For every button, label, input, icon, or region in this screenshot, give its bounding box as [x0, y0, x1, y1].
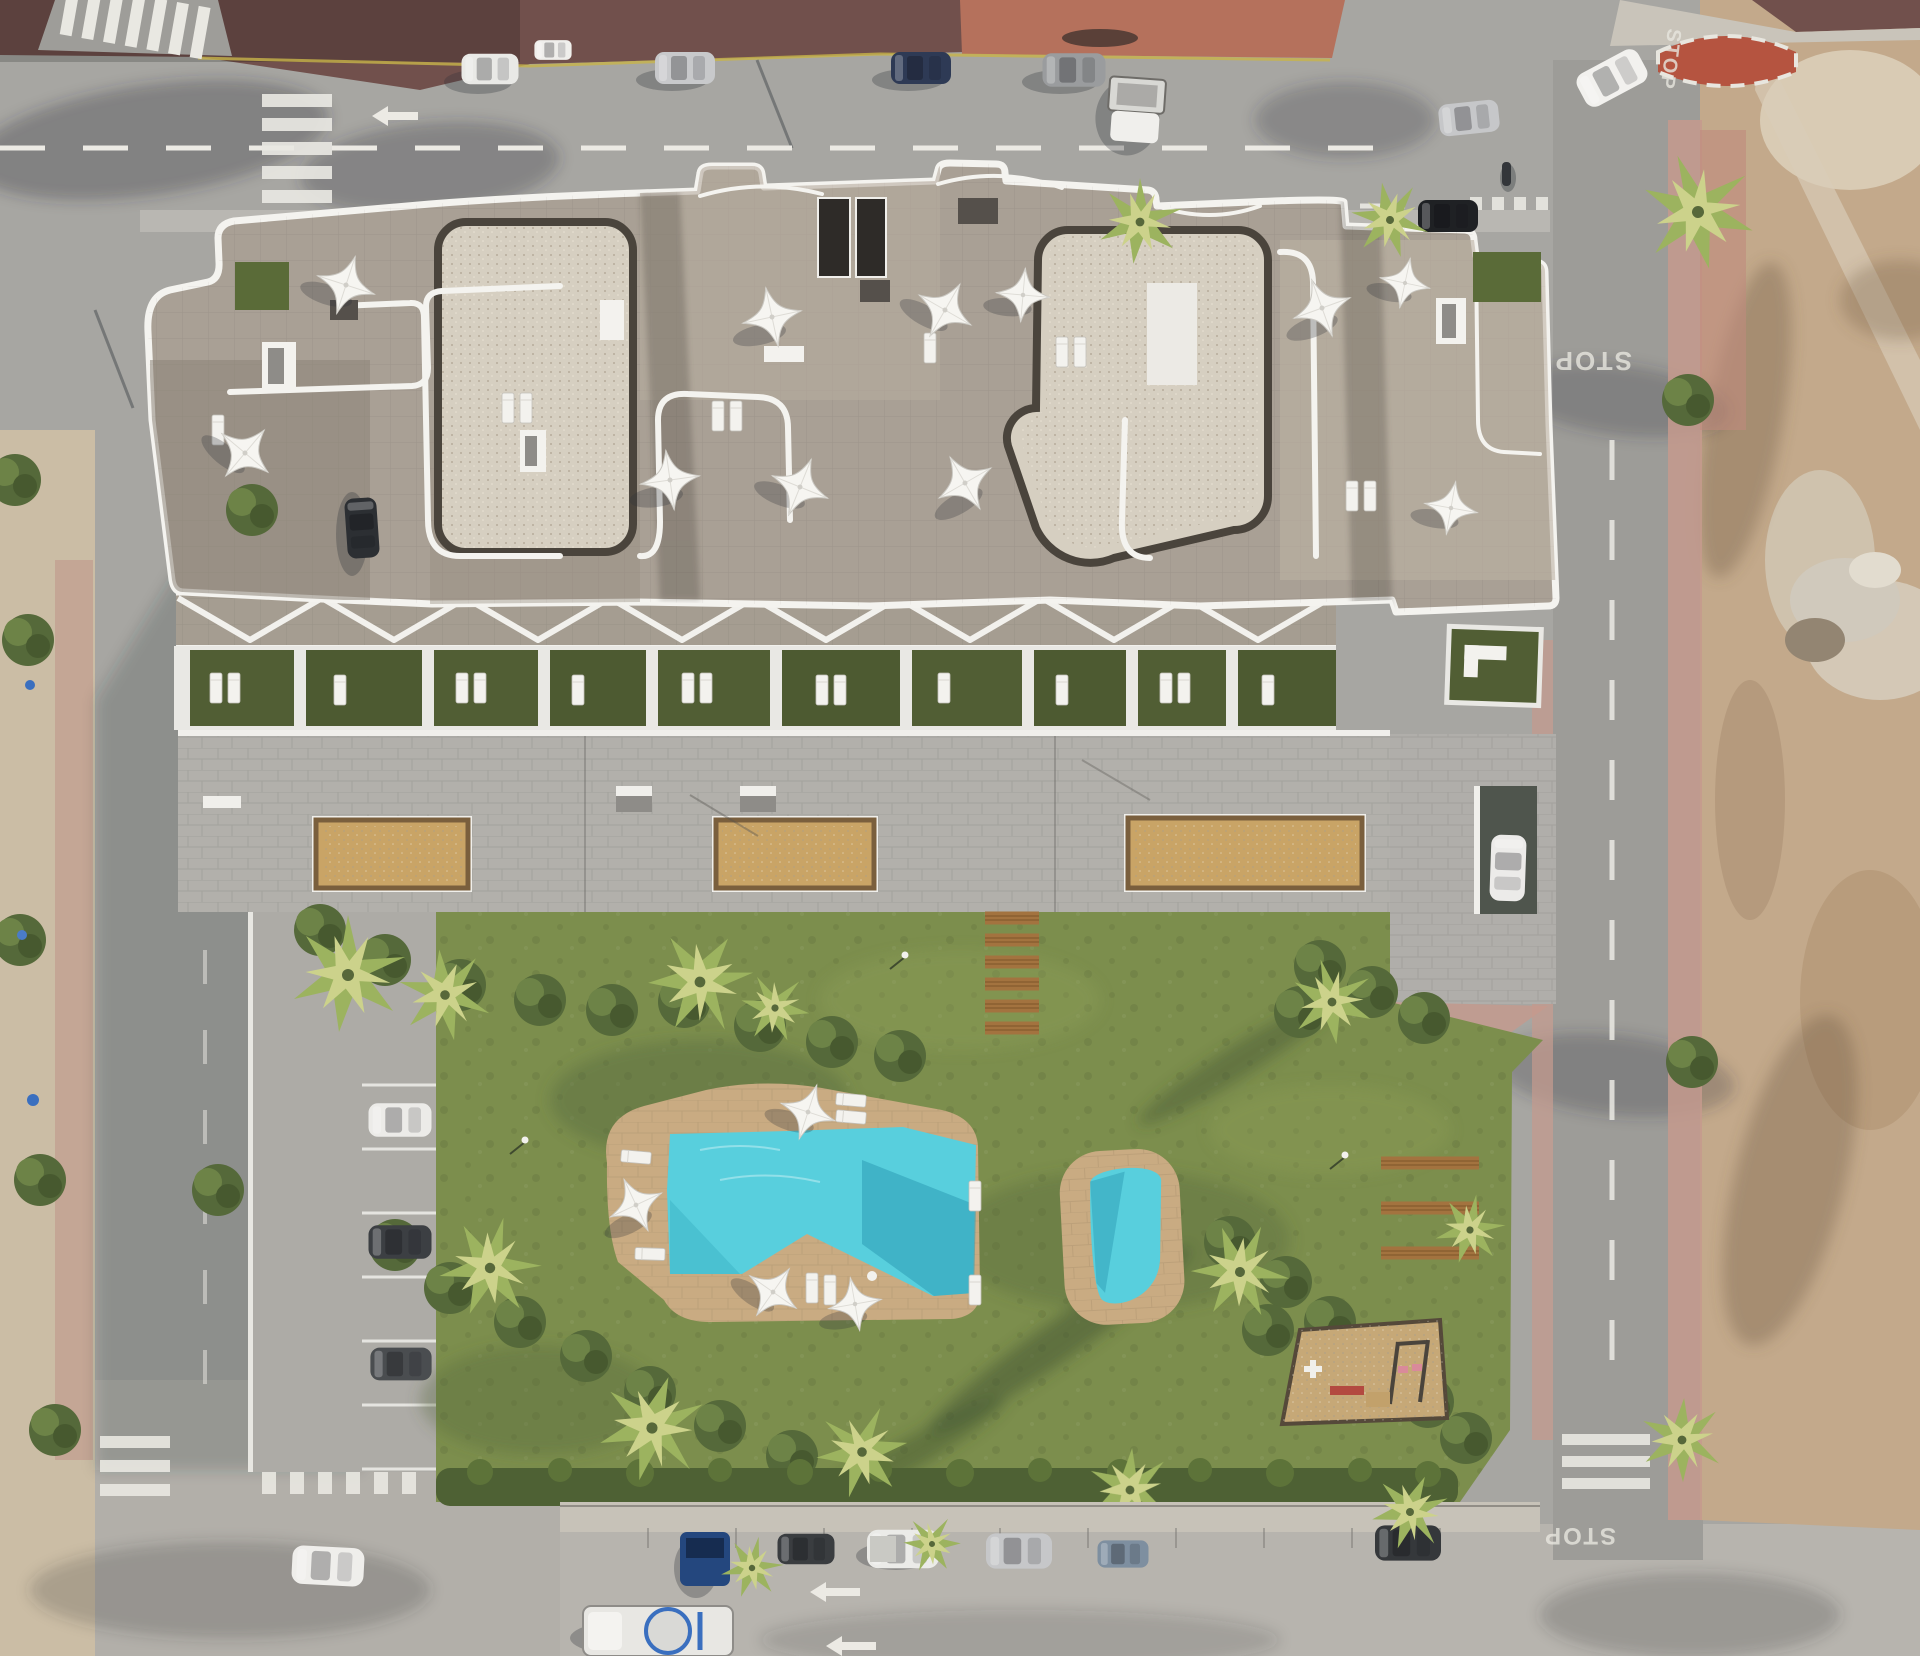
- bush: [2, 614, 54, 666]
- petanque-court: [312, 816, 472, 892]
- roof-planter: [1473, 252, 1541, 302]
- garden-units: [190, 650, 1336, 726]
- bush: [14, 1154, 66, 1206]
- parked-car-gray: [1043, 53, 1106, 87]
- parked-car-silver: [986, 1533, 1052, 1568]
- play-bench: [1330, 1386, 1364, 1395]
- parked-car-silver: [655, 52, 715, 84]
- parked-car-white: [534, 40, 571, 60]
- moving-car-silver: [1437, 99, 1500, 137]
- parked-car-blue: [891, 52, 951, 84]
- parked-suv-dark: [778, 1534, 835, 1564]
- crosswalk-right-bottom: [1562, 1434, 1650, 1489]
- blue-bin: [25, 680, 35, 690]
- petanque-court: [1124, 814, 1366, 892]
- parked-car-steel-blue: [1098, 1540, 1149, 1567]
- stop-marking-bottom: STOP: [1543, 1522, 1616, 1549]
- swing-seat: [1412, 1364, 1422, 1371]
- roof-planter: [235, 262, 289, 310]
- roof-table-set: [958, 198, 998, 224]
- petanque-court: [712, 816, 878, 892]
- blue-bin: [17, 930, 27, 940]
- left-sand-sidewalk: [0, 430, 95, 1656]
- communal-garden: [294, 904, 1543, 1549]
- stop-marking-right: STOP: [1554, 346, 1632, 376]
- parked-van-white: [462, 54, 519, 84]
- petanque-courts: [312, 814, 1366, 892]
- top-left-crosswalk: [38, 0, 232, 59]
- aerial-render: STOP STOP STOP: [0, 0, 1920, 1656]
- sand-table: [1366, 1392, 1390, 1407]
- pink-tile-strip: [55, 560, 93, 1460]
- garage-ramp-car: [1489, 834, 1526, 901]
- parked-van-white: [291, 1545, 365, 1587]
- white-roof-panel: [1147, 283, 1197, 385]
- swing-seat: [1398, 1366, 1408, 1373]
- blue-bin: [27, 1094, 39, 1106]
- corner-garden-unit: [1447, 626, 1542, 705]
- small-pool: [1058, 1147, 1187, 1327]
- playground: [1282, 1320, 1447, 1424]
- roof-table-set: [860, 280, 890, 302]
- cement-mixer-truck: [570, 1606, 733, 1656]
- bush: [29, 1404, 81, 1456]
- plaza-bench: [1062, 29, 1138, 47]
- moving-car-black: [1418, 200, 1478, 232]
- scene-svg: STOP STOP STOP: [0, 0, 1920, 1656]
